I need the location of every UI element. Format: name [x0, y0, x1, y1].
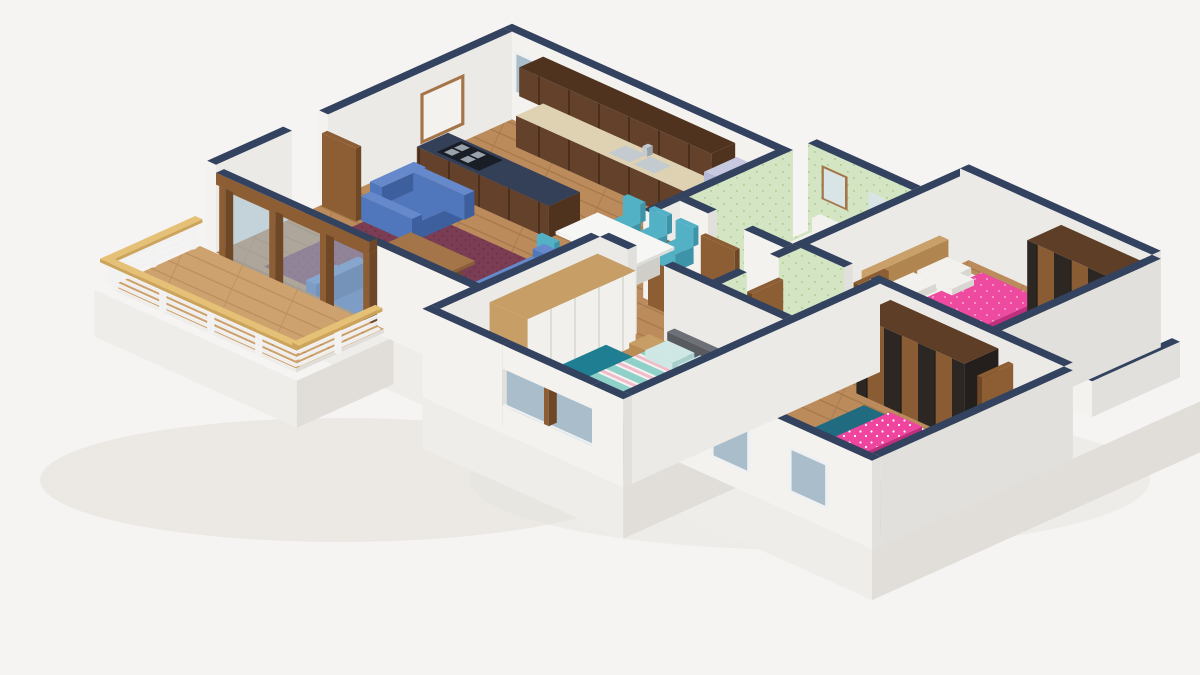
armchair1-arm-left-se-face [464, 191, 474, 220]
balcony-rail-front-post-4-sw-face [255, 330, 259, 356]
floorplan-3d-render [0, 0, 1200, 675]
slidingdoor-post-1-se-face [225, 185, 233, 265]
wall-bedroom3-front-right-sw-face [592, 385, 623, 488]
slidingdoor-post-1-sw-face [219, 186, 225, 265]
balcony-rail-left-post-1-se-face [193, 224, 197, 250]
slidingdoor-post-2-sw-face [269, 209, 275, 288]
balcony-rail-right-post-se-face [338, 328, 342, 354]
slidingdoor-post-3-sw-face [320, 231, 326, 310]
slidingdoor-post-2-se-face [275, 208, 283, 288]
entry-door-se-face [356, 146, 361, 221]
entry-door-sw-face [322, 133, 356, 221]
balcony-rail-left-post-2-se-face [153, 242, 157, 268]
bedroom3-window-post-sw-face [544, 387, 549, 426]
floorplan-screenshot [0, 0, 1200, 675]
slidingdoor-post-3-se-face [326, 231, 334, 311]
right-ledge-parapet-front-se-face [1092, 378, 1100, 417]
dining-chair-far-3-back-se-face [693, 226, 698, 247]
wall-left-lower-sw-face [207, 161, 216, 253]
wall-bedroom2-front-se-face [872, 457, 881, 549]
balcony-rail-front-post-2-sw-face [159, 287, 163, 313]
wall-bedroom3-front-right-se-face [623, 395, 632, 487]
dining-chair-far-2-back-se-face [667, 214, 672, 235]
balcony-rail-front-post-3-sw-face [207, 308, 211, 334]
balcony-rail-front-post-1-sw-face [111, 265, 115, 291]
dining-chair-far-1-back-se-face [640, 202, 645, 223]
